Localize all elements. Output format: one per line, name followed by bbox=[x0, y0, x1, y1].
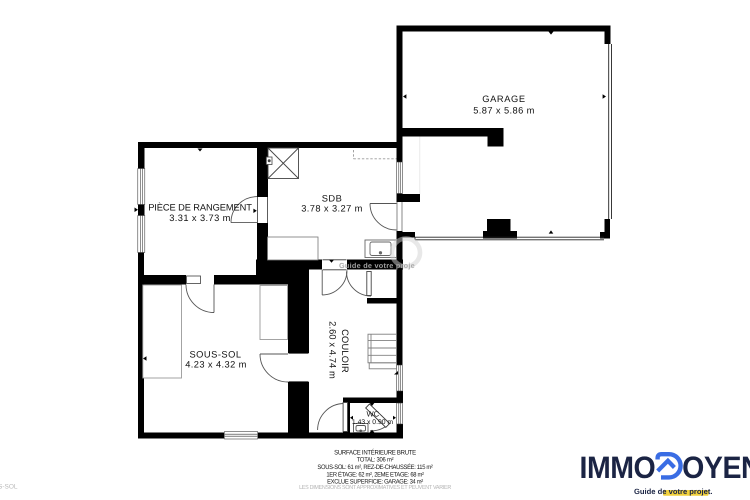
svg-text:WC: WC bbox=[366, 410, 379, 419]
svg-text:S-SOL: S-SOL bbox=[0, 484, 18, 491]
svg-text:3.78 x 3.27 m: 3.78 x 3.27 m bbox=[301, 204, 363, 214]
svg-text:LES DIMENSIONS SONT APPROXIMAT: LES DIMENSIONS SONT APPROXIMATIVES ET PE… bbox=[299, 484, 451, 491]
svg-text:SOUS-SOL: SOUS-SOL bbox=[189, 350, 241, 360]
svg-text:COULOIR: COULOIR bbox=[340, 329, 350, 373]
svg-text:1.43 x 0.90 m: 1.43 x 0.90 m bbox=[352, 419, 394, 426]
svg-text:4.23 x 4.32 m: 4.23 x 4.32 m bbox=[185, 360, 247, 370]
svg-text:5.87 x 5.86 m: 5.87 x 5.86 m bbox=[473, 106, 535, 116]
svg-text:2.60 x 4.74 m: 2.60 x 4.74 m bbox=[328, 321, 338, 379]
svg-text:Guide de votre projet.: Guide de votre projet. bbox=[634, 487, 712, 496]
svg-text:SDB: SDB bbox=[322, 194, 343, 204]
svg-text:GARAGE: GARAGE bbox=[482, 94, 525, 104]
svg-text:IMMO: IMMO bbox=[580, 450, 656, 485]
svg-text:OYEN: OYEN bbox=[682, 450, 750, 485]
svg-text:1ER ÉTAGE: 62 m², 2EME ETAGE:: 1ER ÉTAGE: 62 m², 2EME ETAGE: 68 m² bbox=[326, 471, 423, 479]
svg-text:SOUS-SOL: 61 m², REZ-DE-CHAUSS: SOUS-SOL: 61 m², REZ-DE-CHAUSSÉE: 115 m² bbox=[317, 463, 432, 471]
svg-text:SURFACE INTÉRIEURE BRUTE: SURFACE INTÉRIEURE BRUTE bbox=[334, 449, 417, 457]
svg-text:TOTAL: 306 m²: TOTAL: 306 m² bbox=[357, 457, 394, 464]
svg-text:3.31 x 3.73 m: 3.31 x 3.73 m bbox=[169, 213, 231, 223]
svg-text:PIÈCE DE RANGEMENT: PIÈCE DE RANGEMENT bbox=[148, 202, 252, 213]
svg-text:Guide de votre proje: Guide de votre proje bbox=[339, 261, 415, 270]
